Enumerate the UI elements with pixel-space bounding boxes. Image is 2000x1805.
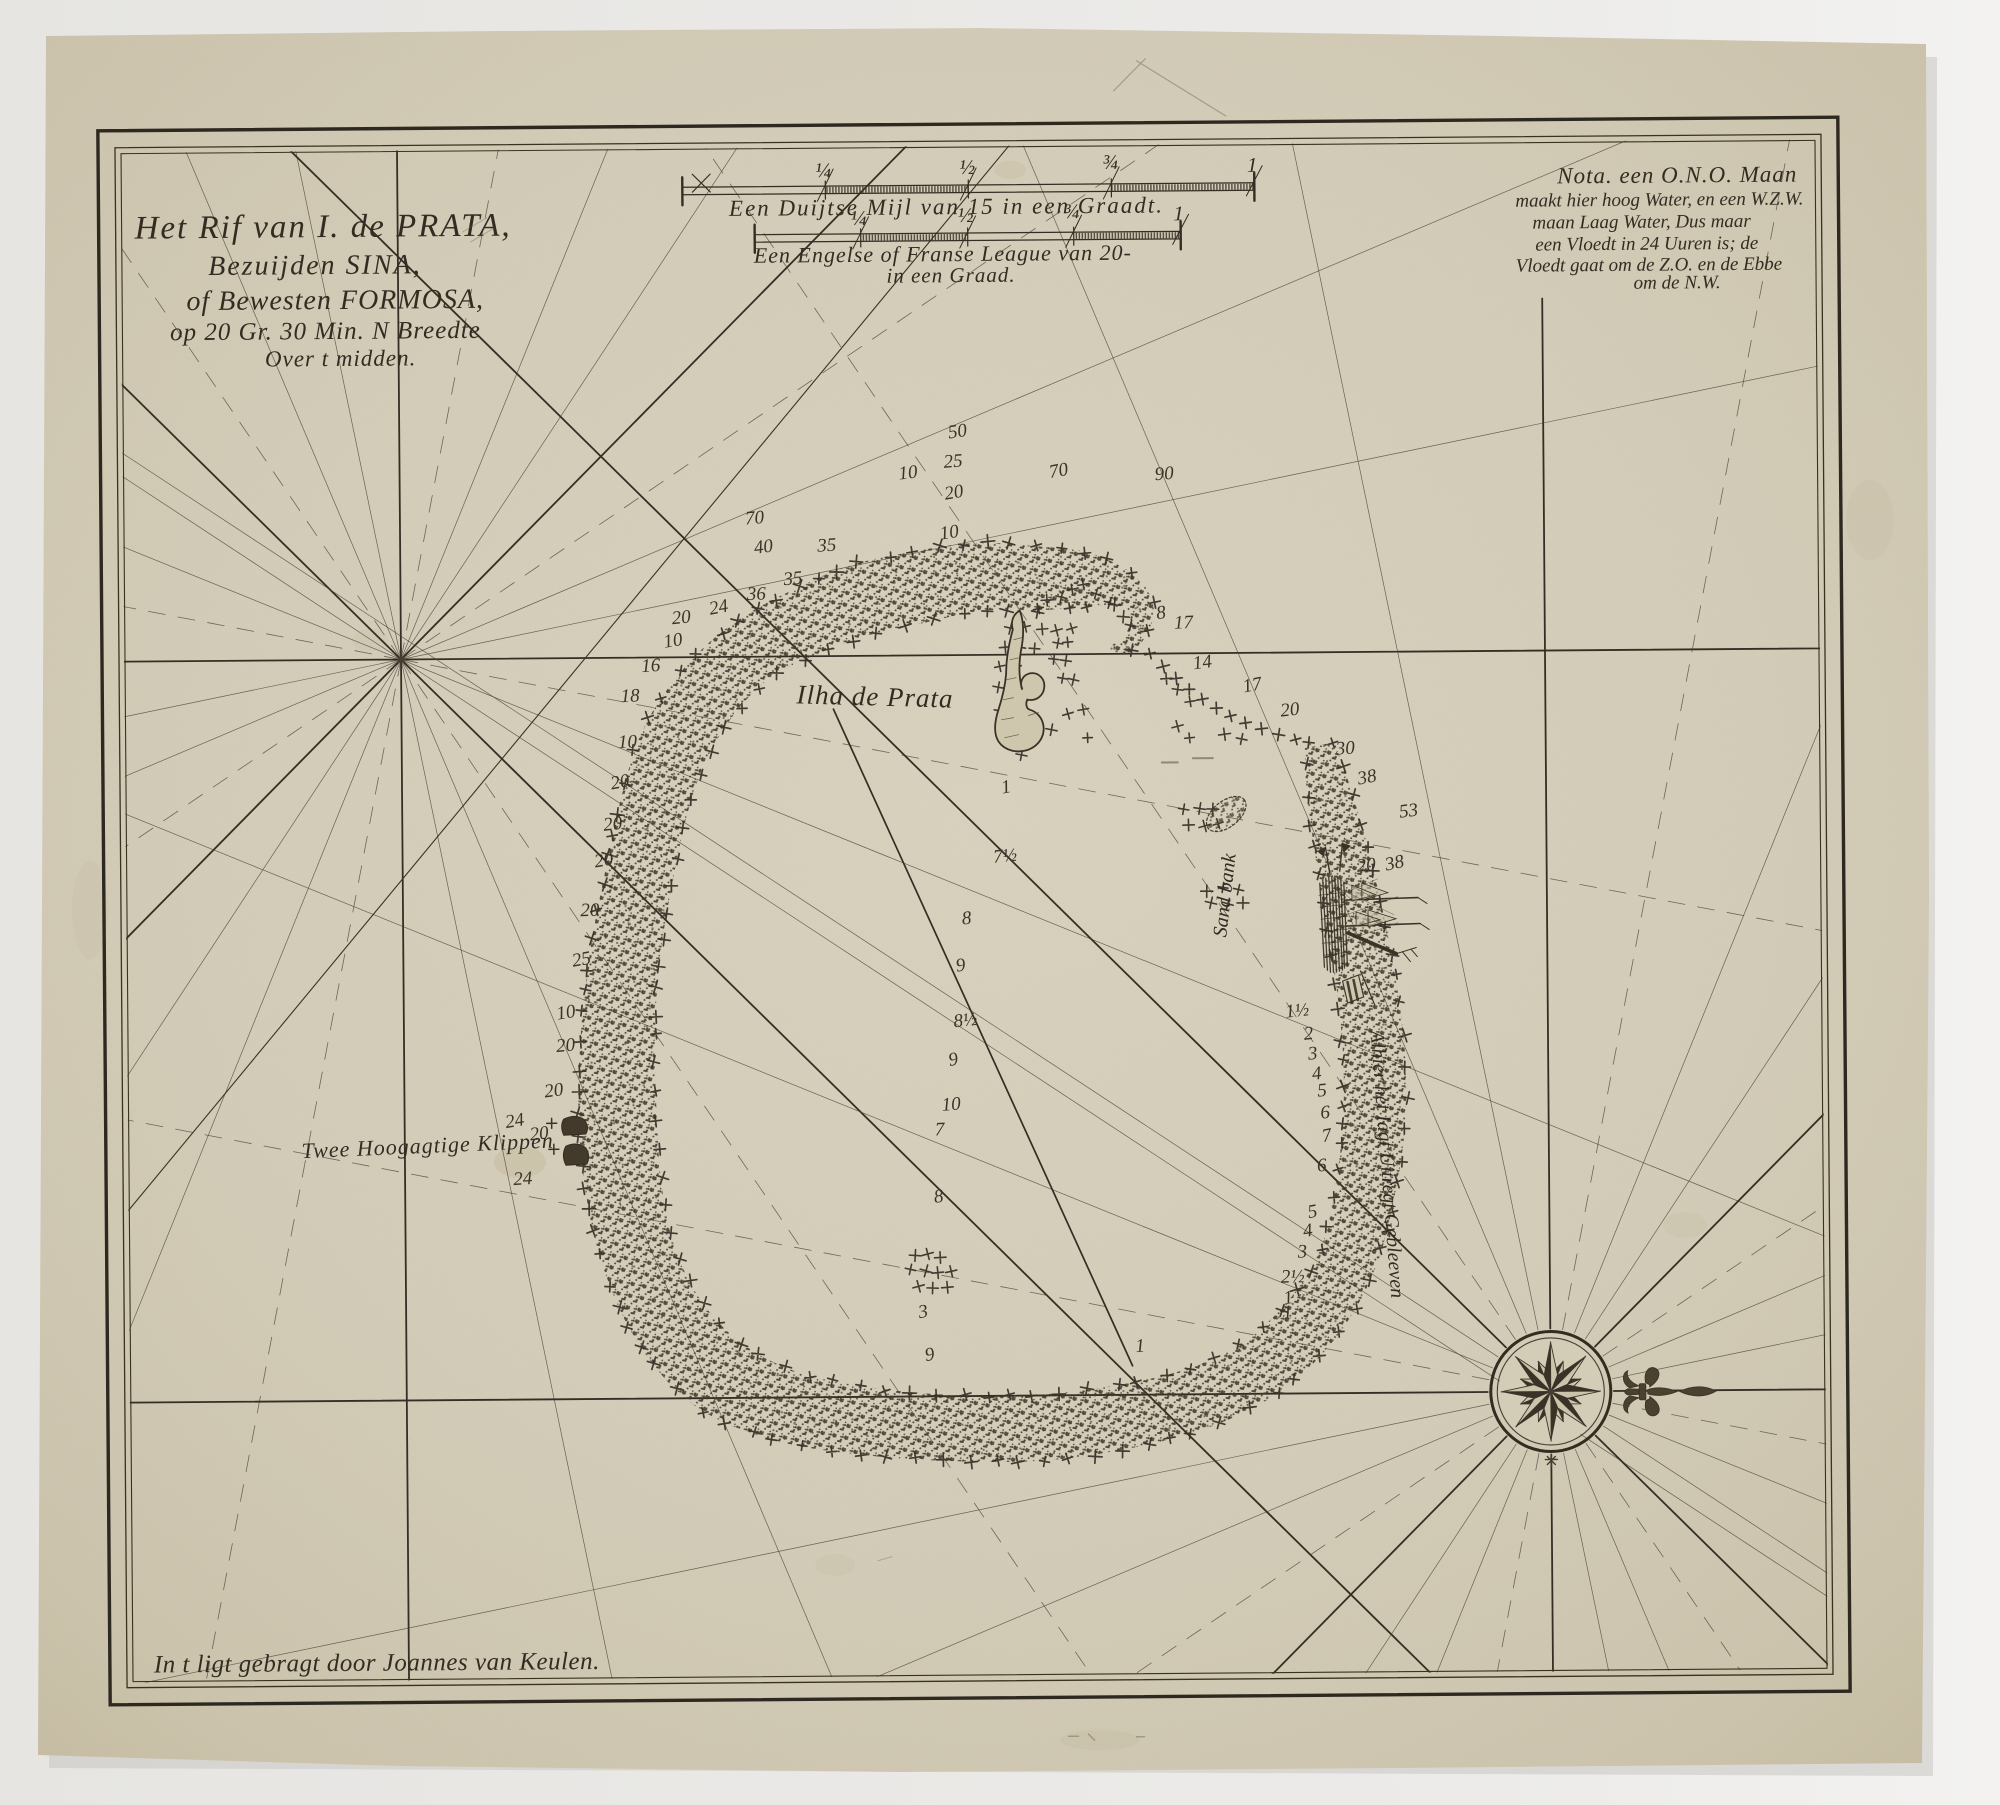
svg-text:7½: 7½: [992, 845, 1018, 868]
svg-text:3: 3: [1306, 1043, 1318, 1065]
svg-text:10: 10: [618, 731, 638, 753]
svg-text:¼: ¼: [815, 158, 831, 182]
svg-text:20: 20: [529, 1122, 551, 1145]
svg-text:Het Rif van I. de PRATA,: Het Rif van I. de PRATA,: [133, 208, 511, 247]
svg-text:10: 10: [662, 629, 685, 653]
svg-text:10: 10: [555, 1001, 578, 1025]
svg-text:maakt hier hoog Water, en een: maakt hier hoog Water, en een W.Z.W.: [1515, 188, 1803, 211]
svg-text:20: 20: [593, 848, 616, 872]
svg-text:24: 24: [504, 1109, 527, 1133]
svg-text:20: 20: [580, 900, 600, 921]
svg-text:1: 1: [1173, 201, 1184, 225]
svg-text:5: 5: [1316, 1080, 1327, 1102]
svg-text:40: 40: [753, 535, 775, 558]
svg-text:1½: 1½: [1284, 999, 1310, 1023]
svg-text:25: 25: [943, 450, 964, 472]
svg-text:8½: 8½: [952, 1009, 978, 1033]
svg-text:16: 16: [641, 655, 662, 677]
svg-text:20: 20: [1356, 854, 1377, 877]
svg-text:Over t midden.: Over t midden.: [265, 345, 417, 371]
svg-text:10: 10: [941, 1093, 962, 1115]
svg-text:maan Laag Water, Dus maar: maan Laag Water, Dus maar: [1532, 211, 1751, 234]
svg-text:30: 30: [1334, 737, 1356, 760]
svg-text:in een Graad.: in een Graad.: [886, 263, 1015, 288]
svg-text:10: 10: [897, 461, 919, 484]
svg-text:35: 35: [816, 535, 837, 557]
svg-text:1: 1: [1134, 1335, 1145, 1357]
svg-text:17: 17: [1174, 612, 1195, 634]
svg-text:20: 20: [1279, 698, 1301, 721]
svg-text:20: 20: [943, 481, 966, 505]
svg-text:24: 24: [513, 1168, 534, 1190]
svg-text:20: 20: [543, 1079, 565, 1102]
svg-text:1: 1: [1247, 153, 1258, 177]
svg-text:90: 90: [1154, 463, 1175, 485]
svg-text:70: 70: [744, 507, 765, 529]
svg-text:20: 20: [671, 606, 692, 629]
svg-text:2½: 2½: [1281, 1266, 1305, 1288]
svg-text:6: 6: [1316, 1155, 1327, 1177]
svg-text:Een Duijtse Mijl van 15 in een: Een Duijtse Mijl van 15 in een Graadt.: [728, 192, 1164, 220]
svg-text:½: ½: [959, 155, 975, 179]
svg-text:¾: ¾: [1102, 150, 1118, 174]
svg-text:50: 50: [947, 420, 969, 444]
svg-text:een Vloedt in 24 Uuren is; de: een Vloedt in 24 Uuren is; de: [1535, 233, 1758, 256]
svg-text:35: 35: [781, 568, 803, 591]
svg-text:Bezuijden SINA,: Bezuijden SINA,: [208, 249, 422, 282]
svg-text:of Bewesten FORMOSA,: of Bewesten FORMOSA,: [186, 284, 484, 317]
svg-text:20: 20: [602, 813, 624, 836]
svg-text:10: 10: [938, 521, 960, 545]
svg-text:36: 36: [746, 583, 767, 605]
svg-text:53: 53: [1398, 799, 1420, 822]
svg-text:20: 20: [555, 1034, 576, 1057]
svg-text:18: 18: [620, 685, 640, 707]
svg-text:25: 25: [570, 948, 592, 972]
svg-text:op 20 Gr. 30 Min. N Breedte: op 20 Gr. 30 Min. N Breedte: [170, 317, 481, 346]
svg-text:3: 3: [1296, 1241, 1308, 1263]
svg-text:Nota. een O.N.O. Maan: Nota. een O.N.O. Maan: [1556, 162, 1797, 189]
svg-text:In t ligt gebragt door Joannes: In t ligt gebragt door Joannes van Keule…: [153, 1648, 600, 1679]
svg-text:14: 14: [1192, 651, 1214, 674]
svg-text:om de N.W.: om de N.W.: [1634, 272, 1721, 294]
svg-text:Ilha de Prata: Ilha de Prata: [795, 679, 954, 713]
